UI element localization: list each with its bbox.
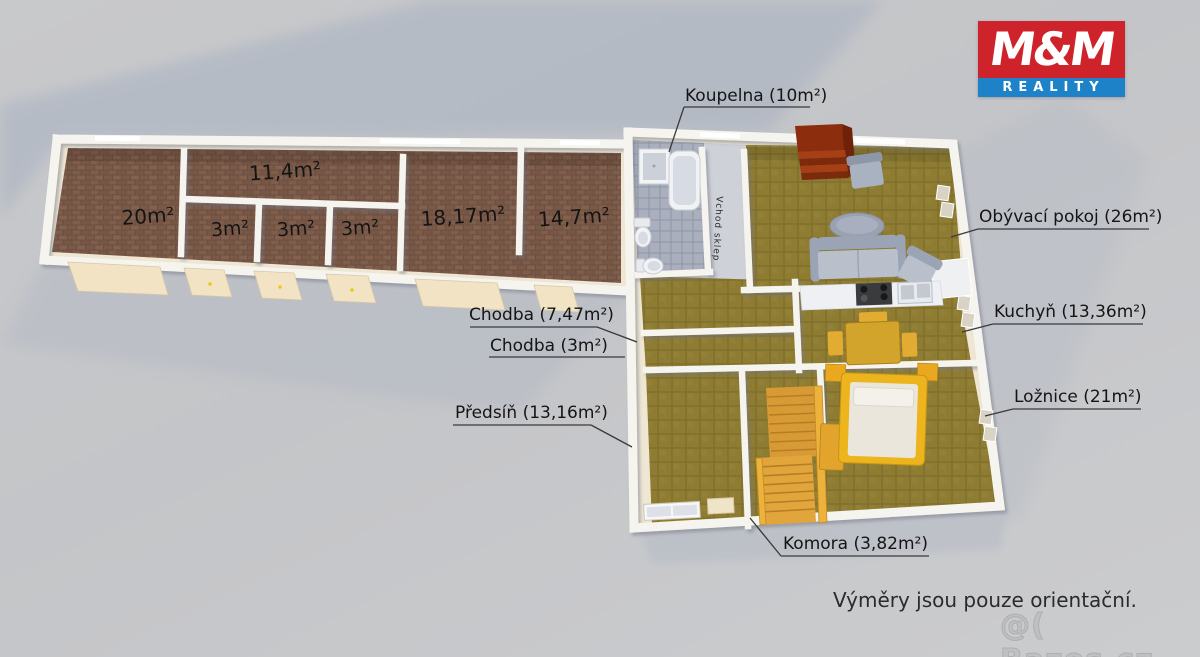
bathtub-basin [673, 156, 696, 205]
window-icon [940, 202, 954, 218]
floor-label-14-7m2: 14,7m² [537, 203, 611, 232]
window-pane [673, 505, 697, 516]
leader-predsin [453, 425, 632, 447]
window-pane [647, 506, 671, 517]
sink-basin [917, 283, 930, 297]
window-icon [936, 185, 950, 201]
window-icon [380, 141, 460, 142]
stove-top [856, 282, 893, 305]
sofa-cushion-line [858, 250, 859, 278]
logo-mm: M&M [978, 21, 1125, 78]
kitchen-table [845, 321, 900, 365]
bedroom-furniture [822, 360, 937, 466]
window-icon [855, 140, 905, 142]
cellar-staircase [795, 124, 856, 180]
window-icon [961, 312, 975, 328]
door-panel [254, 271, 302, 300]
callout-chodba-747: Chodba (7,47m²) [469, 305, 614, 325]
door-handle [350, 288, 354, 292]
window-icon [979, 409, 993, 425]
logo-reality: REALITY [978, 78, 1125, 97]
door-handle [208, 282, 212, 286]
shower-drain [653, 165, 656, 168]
sink-icon [898, 281, 933, 303]
floor-plan-page: Koupelna (10m²) Chodba (7,47m²) Chodba (… [0, 0, 1200, 657]
bed-pillow [853, 387, 914, 407]
entry-door [707, 498, 734, 514]
floor-label-cell1: 3m² [210, 217, 250, 242]
door-panel [68, 262, 168, 295]
callout-obyvaci-pokoj: Obývací pokoj (26m²) [979, 207, 1162, 227]
table-highlight [836, 216, 878, 234]
sofa [809, 234, 906, 281]
logo-mm-text: M&M [986, 22, 1117, 78]
window-icon [700, 135, 740, 136]
cellar-stairs-landing [795, 124, 845, 152]
callout-kuchyn: Kuchyň (13,36m²) [994, 302, 1147, 322]
callout-koupelna: Koupelna (10m²) [685, 86, 827, 106]
floor-label-20m2: 20m² [121, 202, 175, 230]
window-icon [957, 295, 971, 311]
stove-icon [856, 282, 893, 305]
window-icon [983, 426, 997, 442]
callout-predsin: Předsíň (13,16m²) [455, 403, 608, 423]
callout-komora: Komora (3,82m²) [783, 534, 928, 554]
kitchen-chair [828, 331, 844, 356]
armchair-by-stairs [846, 152, 886, 190]
toilet-bowl [648, 261, 661, 271]
sink-basin [901, 285, 914, 299]
door-panel [326, 274, 376, 303]
floor-label-11-4m2: 11,4m² [248, 157, 322, 186]
floor-label-cell2: 3m² [276, 217, 316, 242]
mm-reality-logo: M&M REALITY [978, 21, 1125, 97]
door-handle [278, 285, 282, 289]
floor-label-cell3: 3m² [340, 216, 380, 241]
bazos-watermark: @( Bazos.cz [1000, 608, 1200, 657]
callout-chodba-3: Chodba (3m²) [490, 336, 608, 356]
chair-seat [849, 161, 884, 189]
kitchen-chair [902, 332, 918, 357]
floor-plan-drawing [0, 0, 1200, 657]
toilet-bowl [638, 232, 648, 245]
toilet-tank [634, 218, 650, 227]
door-panel [184, 268, 232, 297]
coffee-table [830, 213, 884, 239]
callout-loznice: Ložnice (21m²) [1014, 387, 1141, 407]
